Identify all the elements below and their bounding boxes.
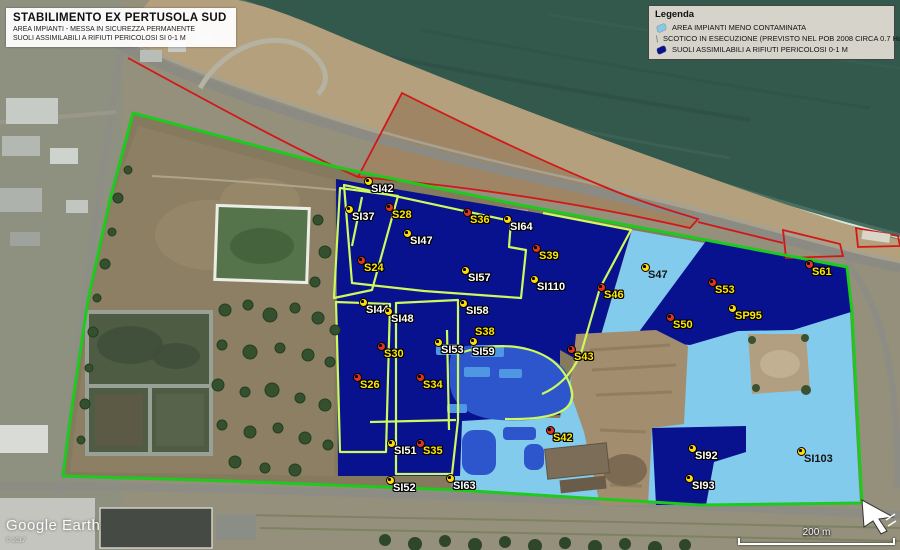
sample-point-label: S50 [673,319,693,331]
sample-point-label: S53 [715,284,735,296]
sample-point-label: S42 [553,432,573,444]
sample-point-label: S47 [648,269,668,281]
map-canvas[interactable]: SI42SI37S28S36SI64SI47S39S24SI57SI110S47… [0,0,900,550]
sample-point-label: SI52 [393,482,416,494]
sample-points-layer: SI42SI37S28S36SI64SI47S39S24SI57SI110S47… [0,0,900,550]
legend-item-hazardous-soil: SUOLI ASSIMILABILI A RIFIUTI PERICOLOSI … [655,44,889,55]
legend: Legenda AREA IMPIANTI MENO CONTAMINATA S… [648,5,895,60]
sample-point-label: SI51 [394,445,417,457]
sample-point-label: S28 [392,209,412,221]
sample-point-label: SI93 [692,480,715,492]
sample-point-label: S39 [539,250,559,262]
sample-point-label: S43 [574,351,594,363]
sample-point-label: S61 [812,266,832,278]
sample-point-label: S34 [423,379,443,391]
sample-point-label: SI37 [352,211,375,223]
sample-point-label: S36 [470,214,490,226]
sample-point-label: SI42 [371,183,394,195]
sample-point-label: SP95 [735,310,762,322]
sample-point-label: SI110 [537,281,565,293]
sample-point-label: S30 [384,348,404,360]
sample-point-label: S24 [364,262,384,274]
scale-bar-line [738,538,895,545]
sample-point-label: SI64 [510,221,533,233]
sample-point-label: SI47 [410,235,433,247]
sample-point-label: S46 [604,289,624,301]
sample-point-label: SI103 [804,453,833,465]
page-title: STABILIMENTO EX PERTUSOLA SUD [13,12,229,24]
sample-point-label: SI59 [472,346,495,358]
title-subtitle-1: AREA IMPIANTI - MESSA IN SICUREZZA PERMA… [13,26,229,33]
scale-bar: 200 m [738,530,895,545]
title-box: STABILIMENTO EX PERTUSOLA SUD AREA IMPIA… [6,8,236,47]
legend-swatch-light-blue-icon [657,23,666,33]
title-subtitle-2: SUOLI ASSIMILABILI A RIFIUTI PERICOLOSI … [13,35,229,42]
scale-label: 200 m [738,527,895,538]
sample-point-label: SI92 [695,450,718,462]
sample-point-label: S38 [475,326,495,338]
legend-item-less-contaminated: AREA IMPIANTI MENO CONTAMINATA [655,22,889,33]
legend-swatch-medium-blue-icon [656,35,657,41]
google-earth-logo: Google Earth [6,517,100,534]
sample-point-label: SI53 [441,344,464,356]
sample-point-label: SI58 [466,305,489,317]
sample-point-label: S35 [423,445,443,457]
sample-point-label: S26 [360,379,380,391]
sample-point-label: SI48 [391,313,414,325]
copyright-text: © 2017 [6,538,25,544]
sample-point-label: SI63 [453,480,476,492]
legend-swatch-navy-icon [657,45,666,55]
legend-item-scotico: SCOTICO IN ESECUZIONE (PREVISTO NEL POB … [655,33,889,44]
sample-point-label: SI57 [468,272,491,284]
legend-title: Legenda [655,9,889,20]
